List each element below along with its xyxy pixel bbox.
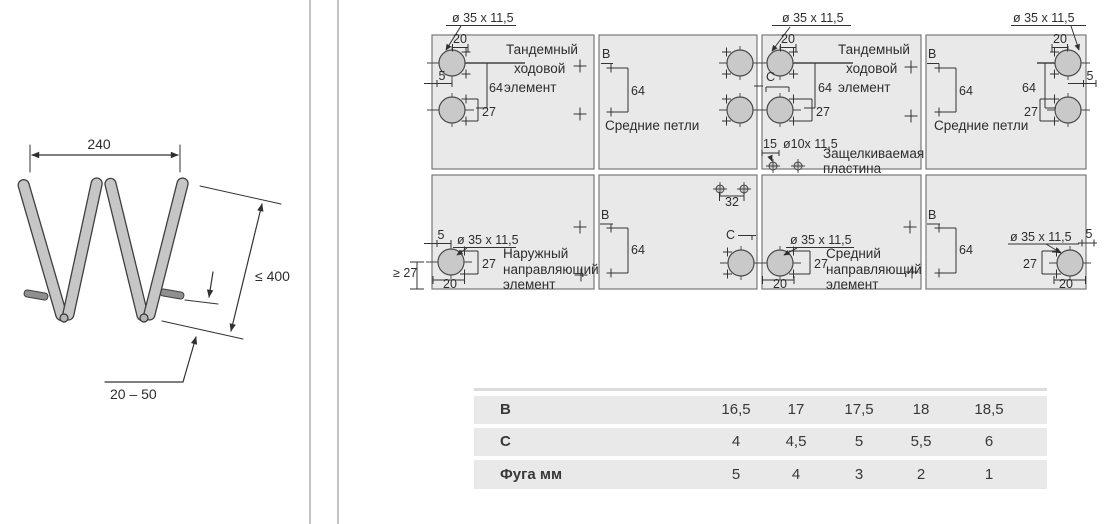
door-width-label: 240 bbox=[87, 136, 111, 152]
dim-20: 20 bbox=[781, 32, 795, 46]
caption-tandem: ходовой bbox=[514, 61, 565, 76]
cell-value: 5 bbox=[829, 428, 889, 456]
letter-C: C bbox=[766, 70, 775, 84]
table-row-fuga: Фуга мм 5 4 3 2 1 bbox=[474, 460, 1047, 489]
cup-hole bbox=[1055, 97, 1081, 123]
cell-value: 4 bbox=[766, 460, 826, 489]
dim-15: 15 bbox=[763, 137, 777, 151]
cell-value: 16,5 bbox=[706, 396, 766, 424]
drill-size-label: ø 35 x 11,5 bbox=[790, 233, 852, 247]
right-guide-stub bbox=[160, 288, 185, 299]
cell-value: 4 bbox=[706, 428, 766, 456]
drill-size-label: ø 35 x 11,5 bbox=[1010, 230, 1072, 244]
cup-hole bbox=[767, 97, 793, 123]
dim-27: 27 bbox=[816, 105, 830, 119]
caption-tandem: элемент bbox=[504, 80, 556, 95]
dim-min-27: ≥ 27 bbox=[393, 266, 417, 280]
dim-64: 64 bbox=[959, 84, 973, 98]
dim-64: 64 bbox=[959, 243, 973, 257]
table-top-border bbox=[474, 388, 1047, 391]
cup-hole bbox=[767, 250, 793, 276]
caption-tandem: Тандемный bbox=[506, 42, 578, 57]
cup-hole bbox=[439, 97, 465, 123]
dim-64: 64 bbox=[631, 243, 645, 257]
row-label: C bbox=[500, 428, 511, 456]
dim-door-width: 240 bbox=[30, 136, 180, 172]
dim-5: 5 bbox=[439, 69, 446, 83]
dim-64: 64 bbox=[631, 84, 645, 98]
letter-B: B bbox=[602, 47, 610, 61]
caption-middle-guide: направляющий bbox=[826, 262, 922, 277]
cell-value: 4,5 bbox=[766, 428, 826, 456]
dim-27: 27 bbox=[1023, 257, 1037, 271]
cell-value: 17,5 bbox=[829, 396, 889, 424]
dim-5: 5 bbox=[1087, 69, 1094, 83]
dim-27: 27 bbox=[482, 105, 496, 119]
row-label: Фуга мм bbox=[500, 460, 562, 489]
table-row-b: B 16,5 17 17,5 18 18,5 bbox=[474, 396, 1047, 424]
drill-size-label: ø 35 x 11,5 bbox=[782, 11, 844, 25]
drill-size-label: ø 35 x 11,5 bbox=[457, 233, 519, 247]
caption-outer-guide: направляющий bbox=[503, 262, 599, 277]
folding-doors-diagram: 240 ≤ 400 20 – 50 bbox=[17, 136, 290, 402]
cell-value: 3 bbox=[829, 460, 889, 489]
caption-outer-guide: элемент bbox=[503, 277, 555, 292]
dim-64: 64 bbox=[818, 81, 832, 95]
dim-5: 5 bbox=[1086, 227, 1093, 241]
caption-tandem: Тандемный bbox=[838, 42, 910, 57]
caption-middle-guide: Средний bbox=[826, 246, 881, 261]
pivot-dot-right bbox=[140, 314, 148, 322]
drill-size-label: ø 35 x 11,5 bbox=[1013, 11, 1075, 25]
left-guide-stub bbox=[24, 289, 49, 300]
cell-value: 5,5 bbox=[891, 428, 951, 456]
drill-size-label: ø 35 x 11,5 bbox=[452, 11, 514, 25]
caption-outer-guide: Наружный bbox=[503, 246, 568, 261]
bc-fuga-table: B 16,5 17 17,5 18 18,5 C 4 4,5 5 5,5 6 Ф… bbox=[474, 388, 1047, 490]
letter-C: C bbox=[726, 228, 735, 242]
dim-5: 5 bbox=[438, 228, 445, 242]
cup-hole bbox=[727, 97, 753, 123]
cell-value: 1 bbox=[959, 460, 1019, 489]
caption-snap-plate: Защелкиваемая bbox=[823, 146, 924, 161]
dim-32: 32 bbox=[725, 195, 739, 209]
cup-hole bbox=[1057, 250, 1083, 276]
dim-20: 20 bbox=[1059, 277, 1073, 291]
caption-middle-guide: элемент bbox=[826, 277, 878, 292]
cup-hole bbox=[728, 250, 754, 276]
cup-hole bbox=[727, 50, 753, 76]
dim-64: 64 bbox=[1022, 81, 1036, 95]
dim-20: 20 bbox=[443, 277, 457, 291]
caption-tandem: ходовой bbox=[846, 61, 897, 76]
caption-tandem: элемент bbox=[838, 80, 890, 95]
dim-27: 27 bbox=[1024, 105, 1038, 119]
caption-snap-plate: пластина bbox=[823, 161, 882, 176]
cup-hole bbox=[1055, 50, 1081, 76]
caption-middle-hinges: Средние петли bbox=[934, 118, 1028, 133]
cell-value: 2 bbox=[891, 460, 951, 489]
pivot-dot-left bbox=[60, 314, 68, 322]
door-panel-3 bbox=[104, 177, 149, 321]
catalog-page: 240 ≤ 400 20 – 50 bbox=[0, 0, 1109, 524]
floor-gap-label: 20 – 50 bbox=[110, 386, 157, 402]
cell-value: 17 bbox=[766, 396, 826, 424]
letter-B: B bbox=[928, 47, 936, 61]
cell-value: 5 bbox=[706, 460, 766, 489]
cell-value: 18 bbox=[891, 396, 951, 424]
door-panel-2 bbox=[62, 177, 103, 321]
dim-20: 20 bbox=[1053, 32, 1067, 46]
row-label: B bbox=[500, 396, 511, 424]
dim-64: 64 bbox=[489, 81, 503, 95]
door-panel-4 bbox=[143, 177, 189, 321]
table-row-c: C 4 4,5 5 5,5 6 bbox=[474, 428, 1047, 456]
letter-B: B bbox=[601, 208, 609, 222]
caption-middle-hinges: Средние петли bbox=[605, 118, 699, 133]
dim-27: 27 bbox=[482, 257, 496, 271]
letter-B: B bbox=[928, 208, 936, 222]
cell-value: 6 bbox=[959, 428, 1019, 456]
cell-value: 18,5 bbox=[959, 396, 1019, 424]
dim-20: 20 bbox=[773, 277, 787, 291]
door-height-label: ≤ 400 bbox=[255, 268, 290, 284]
dim-20: 20 bbox=[453, 32, 467, 46]
